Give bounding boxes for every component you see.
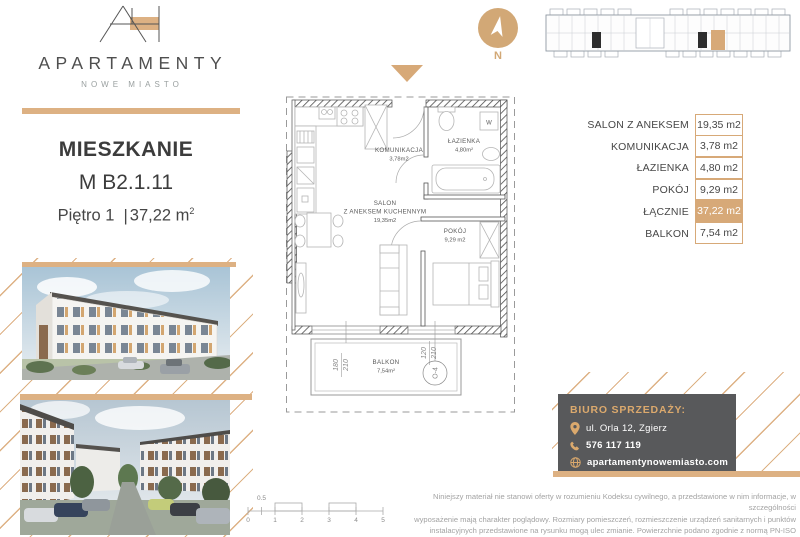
- floor-and-area: Piętro 1|37,22 m2: [15, 206, 237, 226]
- unit-number: M B2.1.11: [15, 171, 237, 195]
- separator: |: [123, 207, 127, 225]
- area-value-total: 37,22 m2: [695, 200, 743, 222]
- sales-office-title: BIURO SPRZEDAŻY:: [570, 404, 724, 416]
- svg-text:180: 180: [333, 359, 340, 371]
- apartment-floor-plan: 180 210 120 210 O-4 KOMUNIKACJA 3,78m2 Ł…: [283, 55, 519, 420]
- sales-office-website-row: apartamentynowemiasto.com: [570, 457, 724, 468]
- brand-name: APARTAMENTY: [18, 53, 242, 74]
- disclaimer-line-1: Niniejszy materiał nie stanowi oferty w …: [400, 491, 796, 514]
- entrance-arrow-icon: [391, 65, 423, 82]
- area-exponent: 2: [189, 206, 194, 216]
- disclaimer-line-2: wyposażenie mają charakter poglądowy. Ro…: [400, 514, 796, 525]
- svg-text:2: 2: [300, 517, 304, 524]
- staircase-mark: [592, 32, 601, 48]
- sales-office-website: apartamentynowemiasto.com: [587, 457, 728, 468]
- room-area-balkon: 7,54m²: [377, 369, 395, 375]
- highlighted-unit: [711, 30, 725, 50]
- flyer-page: APARTAMENTY NOWE MIASTO MIESZKANIE M B2.…: [0, 0, 800, 537]
- globe-icon: [570, 457, 581, 468]
- svg-text:4: 4: [354, 517, 358, 524]
- room-label-salon: SALON: [374, 200, 396, 207]
- legal-disclaimer: Niniejszy materiał nie stanowi oferty w …: [400, 491, 796, 537]
- svg-text:210: 210: [431, 347, 438, 360]
- table-row: POKÓJ9,29 m2: [555, 179, 755, 201]
- brand-logo: APARTAMENTY NOWE MIASTO: [18, 4, 242, 89]
- sales-office-address-row: ul. Orla 12, Zgierz: [570, 422, 724, 435]
- building-rendering-photo-2: [20, 400, 230, 535]
- svg-text:210: 210: [343, 359, 350, 372]
- total-area: 37,22 m: [130, 207, 190, 225]
- sales-office-box: BIURO SPRZEDAŻY: ul. Orla 12, Zgierz 576…: [558, 394, 736, 472]
- svg-text:120: 120: [421, 347, 428, 359]
- location-pin-icon: [570, 422, 580, 435]
- washer-label: W: [486, 121, 492, 127]
- area-value: 9,29 m2: [695, 179, 743, 201]
- window-ref-label: O-4: [433, 367, 440, 379]
- table-row: BALKON7,54 m2: [555, 223, 755, 245]
- area-table: SALON Z ANEKSEM19,35 m2 KOMUNIKACJA3,78 …: [555, 114, 755, 245]
- listing-title: MIESZKANIE M B2.1.11 Piętro 1|37,22 m2: [15, 138, 237, 226]
- svg-text:1: 1: [273, 517, 277, 524]
- table-row: KOMUNIKACJA3,78 m2: [555, 136, 755, 158]
- room-label-balkon: BALKON: [373, 359, 400, 366]
- table-row-total: ŁĄCZNIE37,22 m2: [555, 201, 755, 223]
- listing-heading: MIESZKANIE: [15, 138, 237, 162]
- sales-office-phone-row: 576 117 119: [570, 440, 724, 451]
- table-row: SALON Z ANEKSEM19,35 m2: [555, 114, 755, 136]
- room-label-komunikacja: KOMUNIKACJA: [375, 147, 424, 154]
- scale-bar: 0.5 0 1 2 3 4 5: [243, 492, 393, 529]
- svg-text:3: 3: [327, 517, 331, 524]
- floor-label: Piętro 1: [58, 207, 115, 225]
- svg-text:0: 0: [246, 517, 250, 524]
- room-area-pokoj: 9,29 m2: [445, 238, 466, 244]
- room-label-lazienka: ŁAZIENKA: [448, 138, 481, 145]
- area-value: 19,35 m2: [695, 114, 743, 136]
- svg-text:5: 5: [381, 517, 385, 524]
- divider-bar-office: [553, 471, 800, 477]
- room-label-pokoj: POKÓJ: [444, 228, 466, 235]
- staircase-mark: [698, 32, 707, 48]
- building-rendering-photo-1: [22, 267, 230, 380]
- sales-office-phone: 576 117 119: [586, 440, 641, 451]
- table-row: ŁAZIENKA4,80 m2: [555, 158, 755, 180]
- room-area-salon: 19,35m2: [374, 218, 397, 224]
- brand-subtitle: NOWE MIASTO: [18, 80, 242, 89]
- disclaimer-line-3: instalacyjnych przedstawione na rysunku …: [400, 525, 796, 537]
- sales-office-address: ul. Orla 12, Zgierz: [586, 423, 667, 434]
- room-area-komunikacja: 3,78m2: [389, 157, 408, 163]
- room-label-salon-2: Z ANEKSEM KUCHENNYM: [344, 209, 427, 216]
- area-value: 3,78 m2: [695, 135, 743, 157]
- building-overview-plan: [540, 2, 796, 69]
- phone-icon: [570, 441, 580, 451]
- room-area-lazienka: 4,80m²: [455, 148, 473, 154]
- area-value: 4,80 m2: [695, 157, 743, 179]
- scale-half-label: 0.5: [257, 495, 266, 502]
- brand-monogram-icon: [92, 4, 168, 44]
- divider-bar-logo: [22, 108, 240, 114]
- area-value: 7,54 m2: [695, 222, 743, 244]
